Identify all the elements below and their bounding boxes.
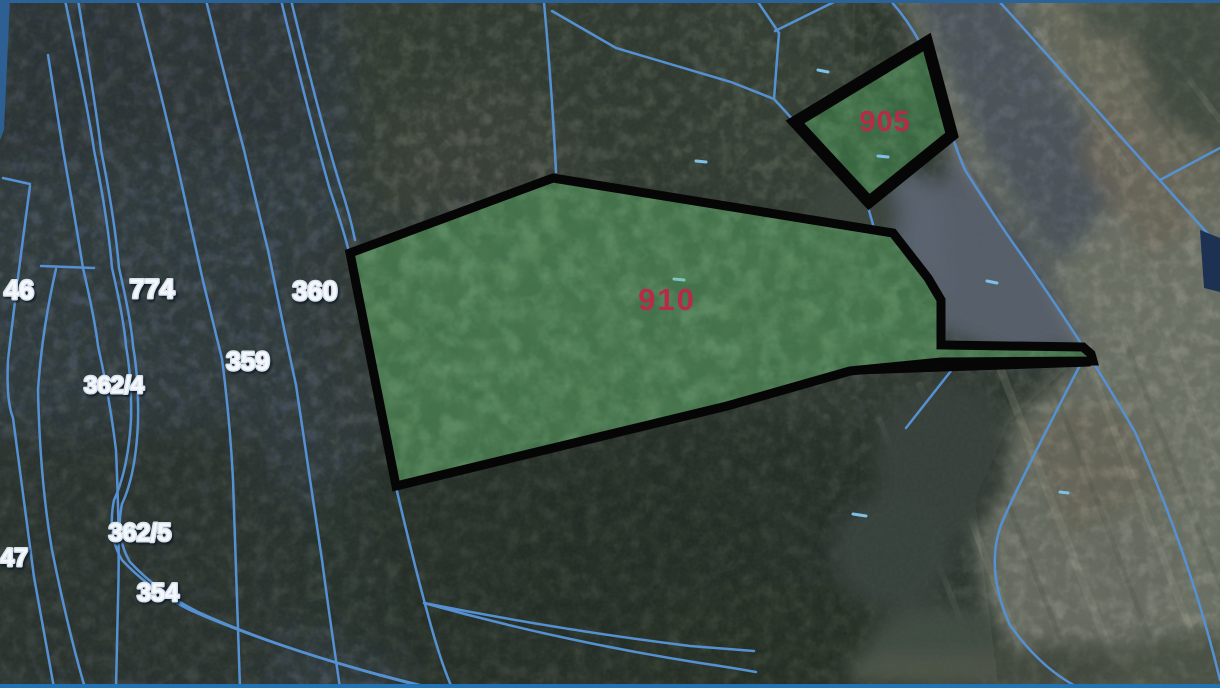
- svg-text:362/4: 362/4: [84, 372, 145, 399]
- svg-text:359: 359: [226, 346, 269, 376]
- svg-text:354: 354: [137, 579, 179, 607]
- svg-text:905: 905: [859, 106, 910, 138]
- svg-text:362/5: 362/5: [109, 519, 172, 547]
- svg-text:47: 47: [0, 544, 28, 572]
- svg-text:910: 910: [638, 282, 696, 317]
- svg-text:360: 360: [292, 276, 337, 306]
- svg-text:774: 774: [129, 274, 174, 304]
- svg-text:46: 46: [4, 275, 34, 305]
